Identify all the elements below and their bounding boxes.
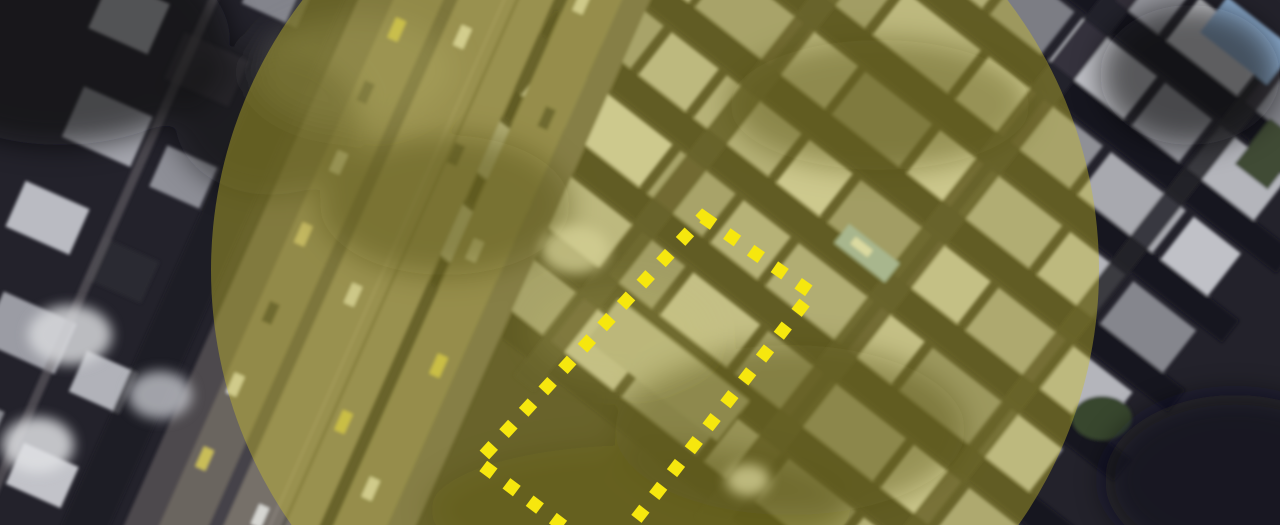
satellite-basemap [0,0,1280,525]
highlight-circle-overlay [211,0,1099,525]
foliage-patch [1072,396,1132,440]
satellite-image [0,0,1280,525]
